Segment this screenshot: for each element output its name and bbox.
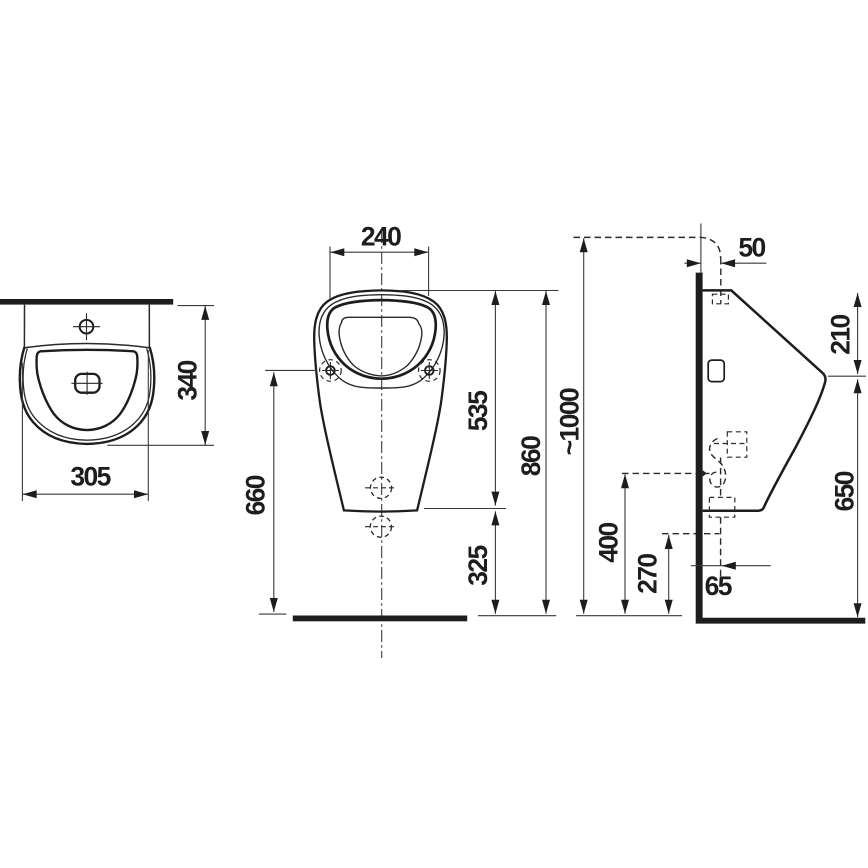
svg-text:210: 210: [826, 315, 856, 355]
svg-text:~1000: ~1000: [555, 388, 585, 455]
svg-text:400: 400: [594, 523, 624, 563]
svg-text:240: 240: [361, 221, 401, 251]
svg-text:65: 65: [705, 571, 732, 601]
svg-text:535: 535: [463, 391, 493, 431]
svg-text:650: 650: [830, 471, 860, 511]
svg-text:50: 50: [738, 233, 765, 263]
svg-text:860: 860: [516, 436, 546, 476]
svg-text:340: 340: [173, 360, 203, 400]
svg-text:305: 305: [70, 461, 110, 491]
svg-text:325: 325: [463, 546, 493, 586]
svg-text:270: 270: [633, 554, 663, 594]
svg-text:660: 660: [241, 475, 271, 515]
